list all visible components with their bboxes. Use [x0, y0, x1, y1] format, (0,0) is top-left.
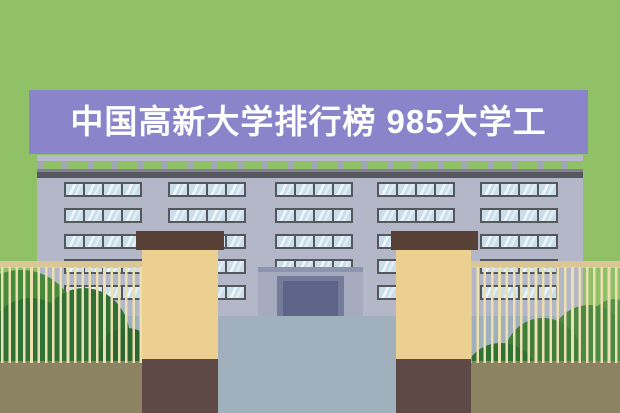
building-roofline [37, 169, 583, 178]
fence-posts-right [469, 267, 620, 363]
roof-railing-posts [37, 161, 583, 169]
gate-pillar-right-shaft [396, 250, 471, 362]
entrance-door [283, 281, 338, 316]
title-banner: 中国高新大学排行榜 985大学工 [29, 90, 588, 154]
gate-pillar-left-base [142, 359, 218, 413]
fence-posts-left [1, 267, 146, 363]
gate-pillar-left-cap [136, 231, 224, 250]
ground-left [0, 361, 143, 413]
gate-pillar-left-shaft [142, 250, 218, 362]
article-cover-image[interactable]: 中国高新大学排行榜 985大学工 [0, 0, 620, 413]
article-title: 中国高新大学排行榜 985大学工 [70, 90, 546, 154]
gate-pillar-right-base [396, 359, 471, 413]
entrance-porch-lintel [258, 267, 363, 272]
illustration-scene: 中国高新大学排行榜 985大学工 [0, 0, 620, 413]
gate-pillar-right-cap [391, 231, 478, 250]
ground-right [468, 361, 620, 413]
